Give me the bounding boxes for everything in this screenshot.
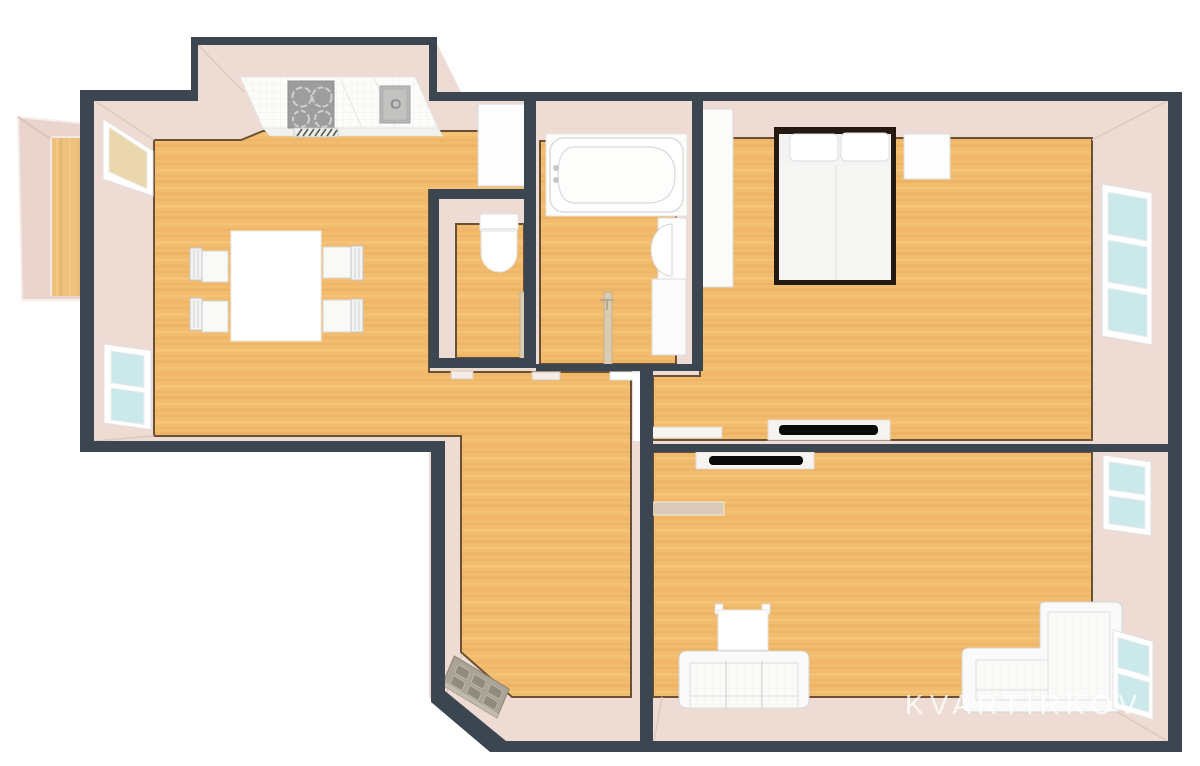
svg-text:KVARTIRKOV: KVARTIRKOV xyxy=(905,689,1145,720)
